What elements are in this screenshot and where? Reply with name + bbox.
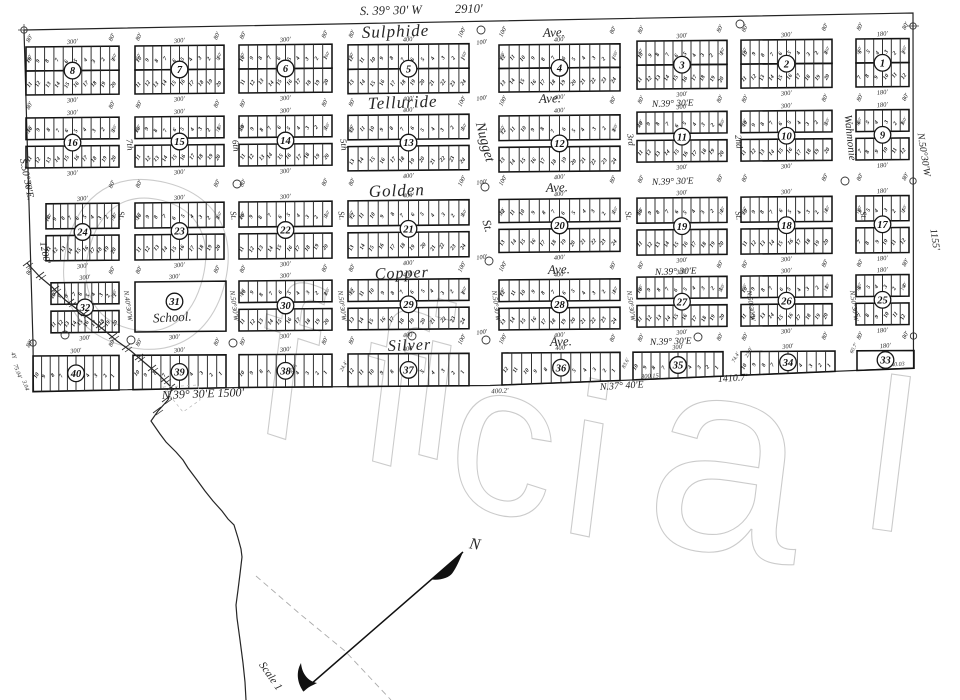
svg-text:300': 300' (65, 38, 78, 46)
svg-text:5: 5 (406, 64, 411, 75)
svg-text:300': 300' (675, 189, 688, 197)
svg-text:300': 300' (675, 103, 688, 111)
svg-text:180': 180' (876, 89, 888, 97)
svg-text:8: 8 (70, 66, 76, 77)
svg-text:2: 2 (783, 59, 790, 70)
svg-text:300': 300' (75, 195, 88, 203)
svg-text:300': 300' (278, 332, 291, 340)
svg-text:300': 300' (779, 267, 792, 275)
svg-text:300': 300' (671, 343, 684, 351)
svg-text:300': 300' (779, 90, 792, 98)
svg-text:28: 28 (553, 300, 565, 311)
svg-text:400': 400' (402, 172, 414, 180)
svg-text:400': 400' (553, 331, 565, 339)
svg-text:300': 300' (65, 109, 78, 117)
svg-text:400': 400' (553, 36, 565, 44)
svg-text:300': 300' (675, 329, 688, 337)
svg-text:400': 400' (402, 192, 414, 200)
svg-text:400': 400' (553, 173, 565, 181)
svg-text:4: 4 (556, 64, 562, 75)
svg-text:300': 300' (278, 272, 291, 280)
svg-text:300': 300' (675, 91, 688, 99)
svg-text:23: 23 (173, 227, 185, 238)
svg-text:15: 15 (174, 137, 185, 148)
svg-text:St.: St. (336, 210, 347, 220)
svg-text:300': 300' (172, 346, 185, 354)
svg-text:St.: St. (623, 210, 634, 220)
svg-text:300': 300' (781, 343, 794, 351)
svg-text:26: 26 (780, 296, 792, 307)
svg-text:2nd: 2nd (733, 134, 745, 149)
svg-text:300': 300' (278, 36, 291, 44)
svg-text:24: 24 (76, 228, 88, 239)
svg-text:300': 300' (172, 168, 185, 176)
svg-text:400': 400' (402, 271, 414, 279)
svg-text:300.15: 300.15 (640, 372, 660, 380)
svg-text:400': 400' (402, 259, 414, 267)
svg-text:180': 180' (876, 162, 888, 170)
svg-text:300': 300' (675, 268, 688, 276)
svg-text:400': 400' (402, 36, 414, 44)
svg-text:30: 30 (279, 301, 291, 312)
svg-text:300': 300' (278, 167, 291, 175)
svg-text:300': 300' (172, 261, 185, 269)
svg-text:300': 300' (75, 262, 88, 270)
svg-text:7: 7 (177, 65, 183, 76)
svg-text:400': 400' (402, 106, 414, 114)
svg-text:400': 400' (402, 345, 414, 353)
svg-text:N.39° 30'E: N.39° 30'E (649, 336, 692, 348)
svg-text:180': 180' (876, 327, 888, 335)
svg-text:300': 300' (78, 334, 91, 342)
svg-text:400': 400' (555, 344, 567, 352)
svg-text:17: 17 (877, 220, 888, 231)
svg-text:300': 300' (675, 32, 688, 40)
svg-text:180': 180' (876, 266, 888, 274)
svg-text:400.2': 400.2' (491, 387, 509, 396)
svg-text:300': 300' (779, 31, 792, 39)
svg-text:34: 34 (782, 358, 794, 369)
svg-text:S. 39° 30' W: S. 39° 30' W (360, 3, 424, 18)
svg-text:400': 400' (553, 190, 565, 198)
svg-text:40.03: 40.03 (891, 361, 905, 369)
svg-text:1410.7': 1410.7' (718, 372, 749, 385)
svg-text:300': 300' (779, 163, 792, 171)
svg-text:Golden: Golden (368, 180, 425, 201)
svg-text:300': 300' (172, 194, 185, 202)
svg-text:19: 19 (677, 222, 688, 233)
svg-text:400': 400' (402, 95, 414, 103)
svg-text:11: 11 (677, 132, 687, 143)
svg-text:18: 18 (781, 221, 792, 232)
svg-text:300': 300' (779, 102, 792, 110)
svg-text:300': 300' (675, 164, 688, 172)
svg-text:300': 300' (278, 107, 291, 115)
svg-text:9: 9 (880, 130, 886, 141)
svg-text:16: 16 (67, 138, 78, 149)
svg-text:36: 36 (555, 363, 567, 374)
svg-text:300': 300' (172, 37, 185, 45)
svg-text:300': 300' (278, 260, 291, 268)
svg-text:180': 180' (876, 30, 888, 38)
svg-text:School.: School. (153, 309, 192, 326)
svg-text:300': 300' (78, 274, 91, 282)
svg-text:180': 180' (876, 101, 888, 109)
svg-text:300': 300' (167, 273, 180, 281)
svg-text:Sulphide: Sulphide (361, 21, 429, 42)
svg-text:10: 10 (781, 131, 792, 142)
svg-text:6: 6 (283, 64, 289, 75)
svg-text:35: 35 (672, 361, 684, 372)
svg-text:300': 300' (167, 333, 180, 341)
svg-text:400': 400' (553, 107, 565, 115)
svg-text:300': 300' (779, 328, 792, 336)
svg-text:180': 180' (879, 342, 891, 350)
svg-text:13: 13 (403, 138, 414, 149)
svg-text:300': 300' (69, 347, 82, 355)
svg-text:22: 22 (279, 226, 291, 237)
svg-text:21: 21 (402, 224, 414, 235)
svg-text:40: 40 (70, 369, 82, 380)
svg-text:300': 300' (172, 95, 185, 103)
svg-text:300': 300' (65, 96, 78, 104)
svg-text:300': 300' (278, 94, 291, 102)
svg-text:2910': 2910' (455, 1, 483, 16)
svg-text:29: 29 (402, 300, 414, 311)
svg-text:300': 300' (278, 346, 291, 354)
svg-text:3rd: 3rd (625, 132, 637, 147)
svg-text:180': 180' (876, 255, 888, 263)
svg-text:39: 39 (173, 368, 185, 379)
svg-text:400': 400' (553, 271, 565, 279)
svg-text:300': 300' (779, 188, 792, 196)
svg-text:20: 20 (553, 221, 565, 232)
svg-text:14: 14 (280, 136, 291, 147)
svg-text:31: 31 (168, 297, 180, 308)
svg-text:27: 27 (676, 297, 688, 308)
svg-text:37: 37 (402, 366, 414, 377)
svg-text:300': 300' (278, 193, 291, 201)
svg-text:N.39° 30'E: N.39° 30'E (651, 176, 694, 188)
svg-text:6th: 6th (230, 139, 241, 152)
svg-text:12: 12 (554, 139, 565, 150)
svg-text:300': 300' (172, 108, 185, 116)
svg-text:300': 300' (65, 169, 78, 177)
svg-text:25: 25 (876, 295, 888, 306)
svg-text:3: 3 (678, 60, 684, 71)
svg-text:300': 300' (779, 256, 792, 264)
svg-text:1: 1 (880, 58, 885, 69)
svg-text:180': 180' (876, 187, 888, 195)
svg-text:400': 400' (553, 254, 565, 262)
svg-text:300': 300' (675, 257, 688, 265)
svg-text:400': 400' (553, 93, 565, 101)
svg-text:7th: 7th (124, 138, 135, 151)
svg-text:33: 33 (879, 356, 891, 367)
